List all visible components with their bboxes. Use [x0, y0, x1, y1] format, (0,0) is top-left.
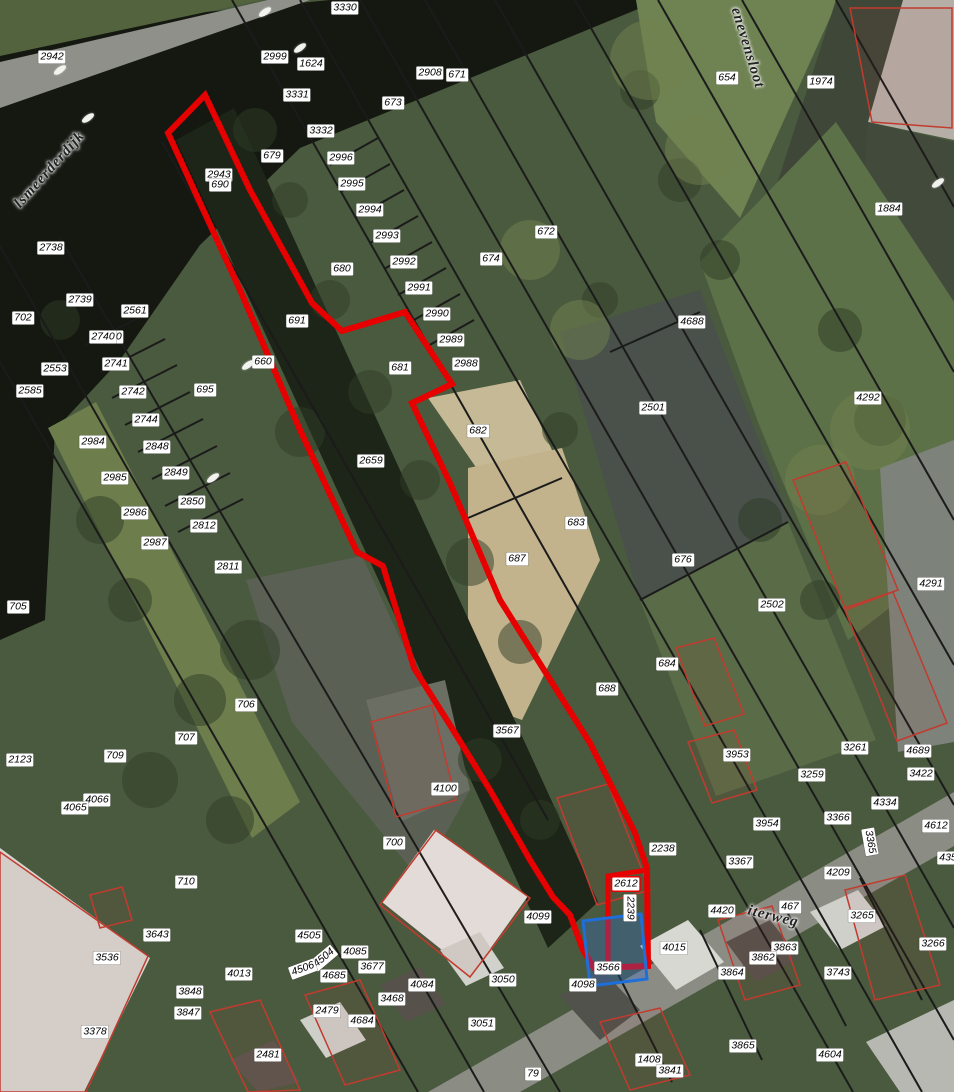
parcel-label-3332: 3332 — [307, 125, 334, 138]
parcel-label-2992: 2992 — [390, 256, 417, 269]
parcel-label-3848: 3848 — [176, 986, 203, 999]
parcel-label-2849: 2849 — [162, 467, 189, 480]
parcel-label-2239: 2239 — [624, 894, 637, 921]
parcel-label-695: 695 — [194, 384, 216, 397]
parcel-label-3366: 3366 — [824, 812, 851, 825]
parcel-label-3051: 3051 — [468, 1018, 495, 1031]
parcel-label-4291: 4291 — [917, 578, 944, 591]
parcel-label-3261: 3261 — [841, 742, 868, 755]
parcel-label-2479: 2479 — [313, 1005, 340, 1018]
parcel-label-673: 673 — [382, 97, 404, 110]
parcel-label-3566: 3566 — [594, 962, 621, 975]
parcel-label-683: 683 — [565, 517, 587, 530]
parcel-label-4292: 4292 — [854, 392, 881, 405]
parcel-label-1884: 1884 — [875, 203, 902, 216]
vegetation-blob — [542, 412, 578, 448]
parcel-label-2481: 2481 — [254, 1049, 281, 1062]
parcel-label-710: 710 — [175, 876, 197, 889]
parcel-label-3677: 3677 — [358, 961, 385, 974]
parcel-label-3330: 3330 — [331, 2, 358, 15]
parcel-label-4688: 4688 — [678, 316, 705, 329]
parcel-label-3422: 3422 — [907, 768, 934, 781]
parcel-label-2991: 2991 — [405, 282, 432, 295]
parcel-label-2123: 2123 — [6, 754, 33, 767]
parcel-label-2908: 2908 — [416, 67, 443, 80]
parcel-label-2987: 2987 — [141, 537, 168, 550]
vegetation-blob — [220, 620, 280, 680]
parcel-label-2986: 2986 — [121, 507, 148, 520]
parcel-label-2994: 2994 — [356, 204, 383, 217]
parcel-label-4689: 4689 — [904, 745, 931, 758]
parcel-label-3567: 3567 — [493, 725, 520, 738]
parcel-label-4604: 4604 — [816, 1049, 843, 1062]
parcel-label-2742: 2742 — [119, 386, 146, 399]
parcel-label-2942: 2942 — [38, 51, 65, 64]
parcel-label-700: 700 — [383, 837, 405, 850]
vegetation-blob — [206, 796, 254, 844]
parcel-label-2553: 2553 — [41, 363, 68, 376]
aerial-map[interactable]: 2942290829432561291025532585333016242999… — [0, 0, 954, 1092]
parcel-label-2659: 2659 — [357, 455, 384, 468]
parcel-label-706: 706 — [235, 699, 257, 712]
parcel-label-435: 435 — [937, 852, 954, 865]
vegetation-blob — [233, 108, 277, 152]
parcel-label-4420: 4420 — [708, 905, 735, 918]
parcel-label-654: 654 — [716, 72, 738, 85]
parcel-label-2985: 2985 — [101, 472, 128, 485]
parcel-label-2812: 2812 — [190, 520, 217, 533]
parcel-label-2988: 2988 — [452, 358, 479, 371]
vegetation-blob — [272, 182, 308, 218]
parcel-label-682: 682 — [467, 425, 489, 438]
vegetation-blob — [122, 752, 178, 808]
parcel-label-4098: 4098 — [569, 979, 596, 992]
parcel-label-2989: 2989 — [437, 334, 464, 347]
vegetation-blob — [400, 460, 440, 500]
parcel-label-2850: 2850 — [178, 496, 205, 509]
parcel-label-3864: 3864 — [718, 967, 745, 980]
parcel-label-3536: 3536 — [93, 952, 120, 965]
parcel-label-4015: 4015 — [660, 942, 687, 955]
parcel-label-2744: 2744 — [132, 414, 159, 427]
parcel-label-702: 702 — [12, 312, 34, 325]
parcel-label-4084: 4084 — [408, 979, 435, 992]
parcel-label-2585: 2585 — [16, 385, 43, 398]
parcel-label-684: 684 — [656, 658, 678, 671]
parcel-label-4100: 4100 — [431, 783, 458, 796]
thin-red-outline-houses-1408 — [600, 1008, 690, 1090]
parcel-label-4065: 4065 — [61, 802, 88, 815]
parcel-label-79: 79 — [525, 1068, 541, 1081]
parcel-label-2741: 2741 — [102, 358, 129, 371]
vegetation-blob — [348, 370, 392, 414]
parcel-label-691: 691 — [286, 315, 308, 328]
parcel-label-2999: 2999 — [261, 51, 288, 64]
parcel-label-3643: 3643 — [143, 929, 170, 942]
parcel-label-3841: 3841 — [656, 1065, 683, 1078]
parcel-label-2995: 2995 — [338, 178, 365, 191]
parcel-label-705: 705 — [7, 601, 29, 614]
parcel-label-679: 679 — [261, 150, 283, 163]
parcel-label-681: 681 — [389, 362, 411, 375]
parcel-label-3468: 3468 — [378, 993, 405, 1006]
parcel-label-3331: 3331 — [283, 89, 310, 102]
parcel-label-3953: 3953 — [723, 749, 750, 762]
vegetation-blob — [800, 580, 840, 620]
parcel-label-687: 687 — [506, 553, 528, 566]
parcel-label-2739: 2739 — [66, 294, 93, 307]
parcel-label-3050: 3050 — [489, 974, 516, 987]
vegetation-blob — [610, 20, 690, 100]
parcel-label-4099: 4099 — [524, 911, 551, 924]
parcel-label-2501: 2501 — [639, 402, 666, 415]
parcel-label-4612: 4612 — [922, 820, 949, 833]
parcel-label-2238: 2238 — [649, 843, 676, 856]
parcel-label-2738: 2738 — [37, 242, 64, 255]
parcel-label-660: 660 — [252, 356, 274, 369]
parcel-label-2984: 2984 — [79, 436, 106, 449]
parcel-label-2612: 2612 — [612, 878, 639, 891]
parcel-label-1624: 1624 — [297, 58, 324, 71]
parcel-label-709: 709 — [104, 750, 126, 763]
parcel-label-2990: 2990 — [423, 308, 450, 321]
parcel-label-672: 672 — [535, 226, 557, 239]
parcel-label-3259: 3259 — [798, 769, 825, 782]
parcel-label-674: 674 — [480, 253, 502, 266]
parcel-label-4505: 4505 — [295, 930, 322, 943]
parcel-label-3865: 3865 — [729, 1040, 756, 1053]
thin-red-outline-building-3378-outline — [0, 852, 148, 1092]
parcel-label-3847: 3847 — [174, 1007, 201, 1020]
parcel-label-4334: 4334 — [871, 797, 898, 810]
parcel-label-690: 690 — [209, 179, 231, 192]
vegetation-blob — [700, 240, 740, 280]
blue-highlight-parcel — [583, 914, 647, 986]
parcel-label-4685: 4685 — [320, 970, 347, 983]
region-industrial-corner — [866, 1000, 954, 1092]
parcel-label-2561: 2561 — [121, 305, 148, 318]
parcel-label-3954: 3954 — [753, 818, 780, 831]
parcel-label-688: 688 — [596, 683, 618, 696]
parcel-label-4209: 4209 — [824, 867, 851, 880]
parcel-label-3367: 3367 — [726, 856, 753, 869]
parcel-label-2996: 2996 — [327, 152, 354, 165]
parcel-label-4013: 4013 — [225, 968, 252, 981]
parcel-label-4085: 4085 — [341, 946, 368, 959]
vegetation-blob — [310, 280, 350, 320]
parcel-label-671: 671 — [446, 69, 468, 82]
parcel-label-680: 680 — [331, 263, 353, 276]
parcel-label-676: 676 — [672, 554, 694, 567]
parcel-label-3265: 3265 — [848, 910, 875, 923]
parcel-label-2502: 2502 — [758, 599, 785, 612]
parcel-label-707: 707 — [175, 732, 197, 745]
vegetation-blob — [738, 498, 782, 542]
parcel-label-4684: 4684 — [348, 1015, 375, 1028]
parcel-label-1974: 1974 — [807, 76, 834, 89]
parcel-label-2811: 2811 — [215, 561, 242, 574]
vegetation-blob — [174, 674, 226, 726]
parcel-label-3378: 3378 — [81, 1026, 108, 1039]
parcel-label-3862: 3862 — [749, 952, 776, 965]
parcel-label-3743: 3743 — [824, 967, 851, 980]
parcel-label-3266: 3266 — [919, 938, 946, 951]
parcel-label-2993: 2993 — [373, 230, 400, 243]
parcel-label-2740: 2740 — [89, 331, 116, 344]
parcel-label-2848: 2848 — [143, 441, 170, 454]
thin-red-outline-houses-2479 — [210, 1000, 300, 1092]
